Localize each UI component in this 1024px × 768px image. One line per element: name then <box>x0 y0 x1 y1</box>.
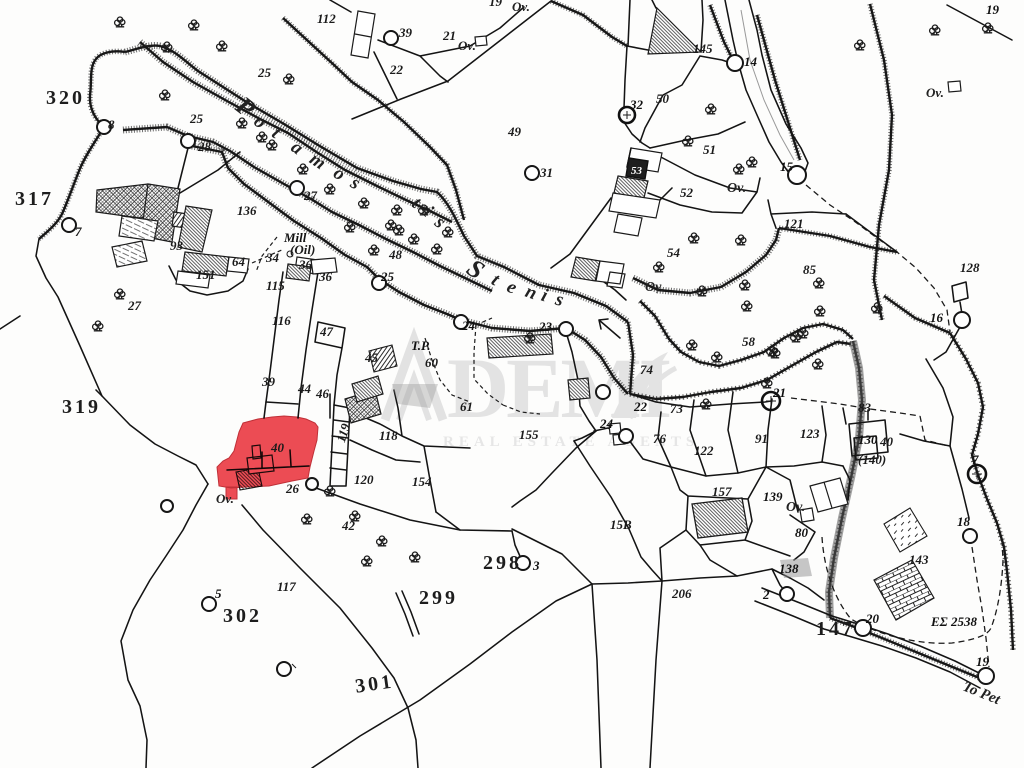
svg-text:22: 22 <box>389 62 404 77</box>
svg-text:123: 123 <box>800 426 820 441</box>
svg-text:206: 206 <box>671 586 692 601</box>
svg-text:21: 21 <box>772 385 786 400</box>
svg-text:115: 115 <box>266 278 285 293</box>
svg-text:136: 136 <box>237 203 257 218</box>
svg-text:53: 53 <box>631 165 643 177</box>
svg-text:85: 85 <box>803 262 817 277</box>
svg-text:302: 302 <box>223 605 262 627</box>
svg-text:39: 39 <box>398 25 413 40</box>
svg-text:147: 147 <box>816 618 855 640</box>
svg-text:19: 19 <box>976 654 990 669</box>
svg-text:151: 151 <box>196 267 216 282</box>
svg-text:76: 76 <box>653 431 667 446</box>
svg-text:50: 50 <box>656 91 670 106</box>
svg-text:39: 39 <box>261 374 276 389</box>
svg-text:61: 61 <box>460 399 473 414</box>
svg-text:46: 46 <box>315 386 330 401</box>
svg-text:20: 20 <box>865 611 880 626</box>
svg-text:Ov.: Ov. <box>645 280 664 295</box>
svg-text:34: 34 <box>265 250 280 265</box>
svg-text:44: 44 <box>297 381 312 396</box>
svg-text:319: 319 <box>62 396 101 418</box>
svg-text:18: 18 <box>957 514 971 529</box>
svg-text:83: 83 <box>858 400 872 415</box>
svg-text:112: 112 <box>317 11 336 26</box>
svg-text:47: 47 <box>319 324 334 339</box>
svg-text:40: 40 <box>270 440 285 455</box>
svg-text:42: 42 <box>341 518 356 533</box>
svg-text:32: 32 <box>629 97 644 112</box>
svg-text:157: 157 <box>712 484 732 499</box>
svg-text:Ov.: Ov. <box>727 181 746 196</box>
svg-text:139: 139 <box>763 489 783 504</box>
svg-text:21: 21 <box>442 28 456 43</box>
svg-text:74: 74 <box>640 362 654 377</box>
svg-text:Ov.: Ov. <box>926 85 944 100</box>
svg-text:64: 64 <box>232 254 246 269</box>
svg-text:60: 60 <box>425 355 439 370</box>
svg-text:19: 19 <box>986 2 1000 17</box>
svg-text:36: 36 <box>318 269 333 284</box>
svg-text:T.P.: T.P. <box>411 338 431 353</box>
svg-text:52: 52 <box>680 185 694 200</box>
svg-text:2: 2 <box>762 587 770 602</box>
svg-text:7: 7 <box>972 452 979 467</box>
svg-text:40: 40 <box>879 434 894 449</box>
svg-text:154: 154 <box>412 474 432 489</box>
svg-text:121: 121 <box>784 216 804 231</box>
svg-text:145: 145 <box>693 41 713 56</box>
svg-text:25: 25 <box>380 269 395 284</box>
svg-text:EΣ 2538: EΣ 2538 <box>930 614 977 629</box>
svg-text:298: 298 <box>483 552 522 574</box>
svg-text:317: 317 <box>15 188 54 210</box>
svg-text:27: 27 <box>303 188 318 203</box>
svg-text:93: 93 <box>170 238 184 253</box>
svg-text:320: 320 <box>46 87 85 109</box>
svg-text:130: 130 <box>858 432 878 447</box>
svg-text:27: 27 <box>127 298 142 313</box>
svg-text:73: 73 <box>670 401 684 416</box>
svg-text:138: 138 <box>779 561 799 576</box>
svg-text:Ov.: Ov. <box>512 0 530 14</box>
svg-text:(140): (140) <box>858 452 886 467</box>
svg-text:80: 80 <box>795 525 809 540</box>
svg-text:14: 14 <box>744 54 758 69</box>
svg-text:45: 45 <box>364 350 379 365</box>
svg-text:117: 117 <box>277 579 296 594</box>
svg-text:36: 36 <box>298 257 313 272</box>
svg-text:(Oil): (Oil) <box>290 242 315 257</box>
svg-text:91: 91 <box>755 431 768 446</box>
svg-text:118: 118 <box>379 428 398 443</box>
svg-text:16: 16 <box>930 310 944 325</box>
svg-text:28: 28 <box>197 139 212 154</box>
svg-text:Ov.: Ov. <box>216 491 234 506</box>
svg-text:120: 120 <box>354 472 374 487</box>
svg-text:8: 8 <box>108 117 115 132</box>
svg-text:24: 24 <box>461 318 476 333</box>
svg-text:Ov.: Ov. <box>458 38 476 53</box>
svg-text:19: 19 <box>489 0 503 9</box>
svg-text:5: 5 <box>215 586 222 601</box>
svg-text:22: 22 <box>633 399 648 414</box>
svg-text:25: 25 <box>189 111 204 126</box>
svg-text:26: 26 <box>285 481 300 496</box>
svg-text:143: 143 <box>909 552 929 567</box>
svg-text:128: 128 <box>960 260 980 275</box>
svg-text:31: 31 <box>539 165 553 180</box>
svg-text:23: 23 <box>538 319 553 334</box>
svg-text:155: 155 <box>519 427 539 442</box>
svg-text:122: 122 <box>694 443 714 458</box>
svg-text:15: 15 <box>780 159 794 174</box>
svg-text:7: 7 <box>75 224 82 239</box>
svg-text:Ov.: Ov. <box>786 500 805 515</box>
svg-text:3: 3 <box>532 558 540 573</box>
svg-text:48: 48 <box>388 247 403 262</box>
svg-text:58: 58 <box>742 334 756 349</box>
svg-text:24: 24 <box>599 416 614 431</box>
svg-text:299: 299 <box>419 587 458 609</box>
svg-text:15B: 15B <box>610 517 632 532</box>
svg-text:49: 49 <box>507 124 522 139</box>
svg-text:51: 51 <box>703 142 716 157</box>
svg-text:25: 25 <box>257 65 272 80</box>
svg-text:54: 54 <box>667 245 681 260</box>
svg-text:116: 116 <box>272 313 291 328</box>
